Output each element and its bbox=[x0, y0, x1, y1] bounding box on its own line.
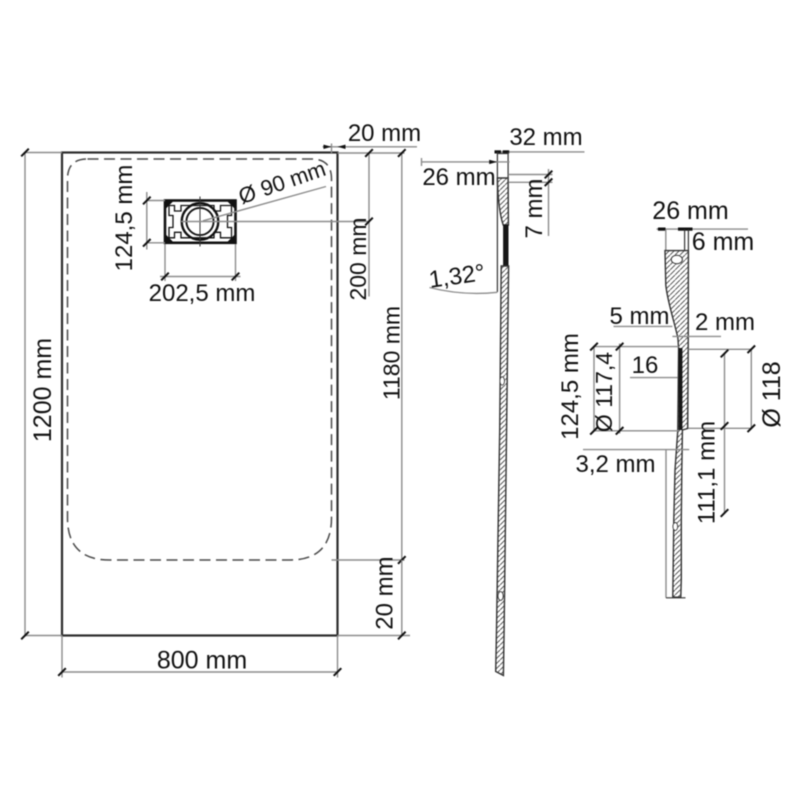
svg-text:3,2 mm: 3,2 mm bbox=[575, 451, 655, 478]
svg-text:202,5 mm: 202,5 mm bbox=[149, 280, 256, 307]
svg-text:1180 mm: 1180 mm bbox=[379, 306, 405, 400]
svg-text:26 mm: 26 mm bbox=[652, 197, 728, 225]
svg-text:16: 16 bbox=[632, 352, 659, 379]
svg-text:20 mm: 20 mm bbox=[372, 556, 399, 629]
svg-text:26 mm: 26 mm bbox=[422, 164, 495, 191]
svg-text:111,1 mm: 111,1 mm bbox=[694, 421, 721, 524]
svg-text:32 mm: 32 mm bbox=[509, 124, 582, 151]
svg-text:6 mm: 6 mm bbox=[692, 228, 755, 256]
svg-text:Ø 117,4: Ø 117,4 bbox=[591, 352, 617, 432]
svg-text:1,32°: 1,32° bbox=[427, 259, 487, 294]
svg-text:2 mm: 2 mm bbox=[695, 309, 755, 336]
svg-text:20 mm: 20 mm bbox=[348, 120, 421, 147]
svg-text:Ø 90 mm: Ø 90 mm bbox=[235, 156, 329, 209]
svg-text:124,5 mm: 124,5 mm bbox=[111, 165, 138, 272]
svg-text:7 mm: 7 mm bbox=[521, 179, 548, 239]
svg-text:200 mm: 200 mm bbox=[345, 217, 371, 300]
svg-text:Ø 118: Ø 118 bbox=[758, 361, 786, 427]
svg-text:800 mm: 800 mm bbox=[157, 647, 247, 675]
svg-text:124,5 mm: 124,5 mm bbox=[557, 333, 584, 440]
svg-text:1200 mm: 1200 mm bbox=[29, 338, 57, 442]
